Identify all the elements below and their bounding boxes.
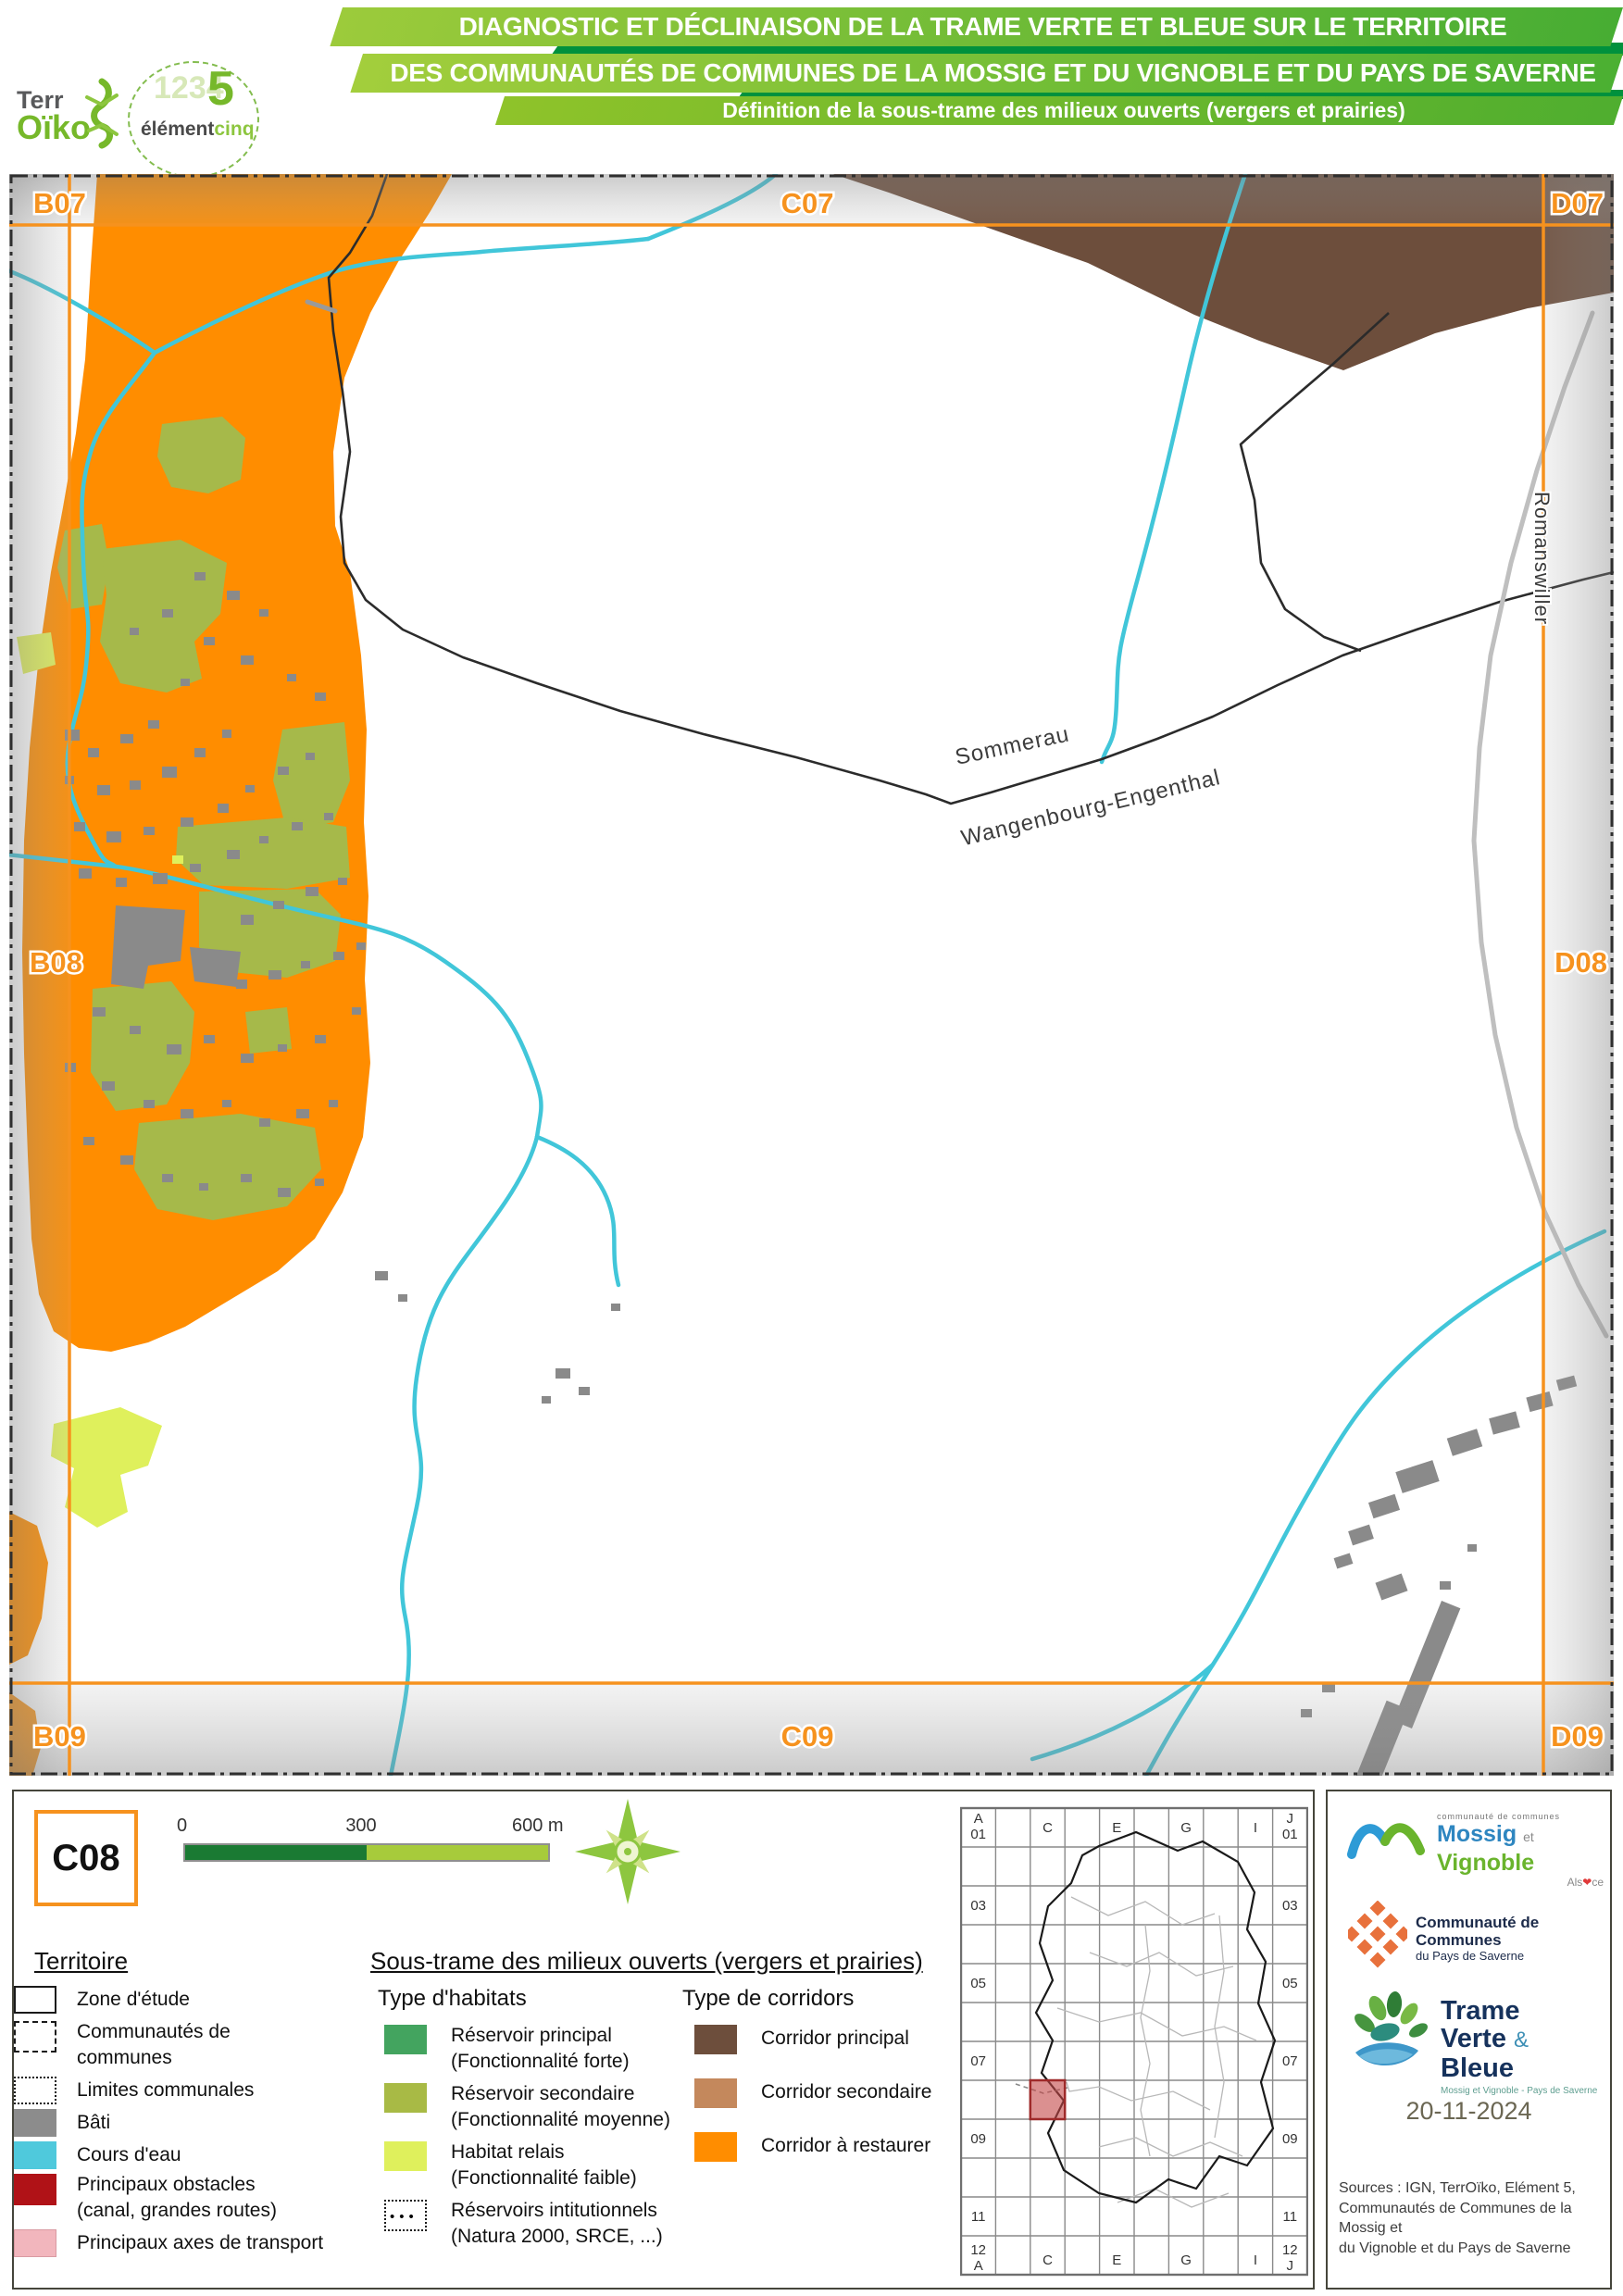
mossig-word: Mossig: [1437, 1821, 1517, 1847]
communautes-swatch: [14, 2021, 56, 2053]
legend-item-reservoir-secondaire: Réservoir secondaire(Fonctionnalité moye…: [384, 2081, 670, 2133]
tile-id: C08: [52, 1838, 119, 1879]
legend-label-line2: (canal, grandes routes): [77, 2200, 277, 2221]
minimap-label: 12: [1282, 2242, 1298, 2258]
legend-label-line2: (Fonctionnalité forte): [451, 2051, 630, 2072]
minimap-label: J: [1287, 2258, 1294, 2274]
alsace-post: ce: [1592, 1876, 1604, 1889]
limites-swatch: [14, 2077, 56, 2104]
minimap-label: G: [1180, 1820, 1192, 1836]
minimap-label: 07: [1282, 2053, 1298, 2069]
grid-label-d08: D08: [1554, 946, 1607, 979]
legend-item-bati: Bâti: [14, 2107, 110, 2137]
tvb-line1: Trame: [1441, 1997, 1607, 2025]
subtitle-text: Définition de la sous-trame des milieux …: [722, 98, 1405, 122]
zone-etude-swatch: [14, 1986, 56, 2014]
scale-bar-light-half: [367, 1845, 548, 1860]
legend-label-line2: (Natura 2000, SRCE, ...): [451, 2226, 663, 2247]
terroiko-logo: Terr Oïko: [17, 88, 91, 143]
legend-label: Réservoirs intitutionnels(Natura 2000, S…: [451, 2198, 663, 2250]
title-banner-1: DIAGNOSTIC ET DÉCLINAISON DE LA TRAME VE…: [343, 7, 1623, 46]
minimap-label: 09: [1282, 2131, 1298, 2147]
legend-item-habitat-relais: Habitat relais(Fonctionnalité faible): [384, 2140, 637, 2191]
saverne-logo: [1348, 1901, 1407, 1974]
saverne-line2: du Pays de Saverne: [1416, 1949, 1605, 1963]
reservoirs-institutionnels-swatch: [384, 2200, 427, 2231]
corridor-restaurer-swatch: [694, 2132, 737, 2162]
map-sheet-page: DIAGNOSTIC ET DÉCLINAISON DE LA TRAME VE…: [0, 0, 1623, 2296]
minimap-label: E: [1112, 2252, 1121, 2268]
legend-item-corridor-secondaire: Corridor secondaire: [694, 2077, 931, 2108]
scale-tick-0: 0: [177, 1816, 187, 1837]
scale-tick-600: 600 m: [512, 1816, 564, 1837]
mossig-wave-icon: [1346, 1808, 1429, 1862]
legend-item-limites: Limites communales: [14, 2075, 254, 2104]
elementcinq-name-2: cinq: [214, 119, 254, 140]
legend-label: Bâti: [77, 2107, 110, 2136]
elementcinq-five: 5: [207, 61, 234, 117]
territoire-heading: Territoire: [34, 1947, 128, 1976]
corridors-subheading: Type de corridors: [682, 1986, 854, 2012]
cours-eau-swatch: [14, 2141, 56, 2169]
grid-label-d07: D07: [1551, 187, 1604, 219]
habitat-relais-swatch: [384, 2141, 427, 2171]
mossig-et: et: [1523, 1829, 1534, 1844]
header: DIAGNOSTIC ET DÉCLINAISON DE LA TRAME VE…: [0, 0, 1623, 174]
legend-label: Principaux obstacles(canal, grandes rout…: [77, 2172, 277, 2224]
tvb-text: Trame Verte & Bleue Mossig et Vignoble -…: [1441, 1997, 1607, 2096]
minimap-label: E: [1112, 1820, 1121, 1836]
tile-id-box: C08: [34, 1810, 138, 1906]
legend-item-reservoir-principal: Réservoir principal(Fonctionnalité forte…: [384, 2023, 630, 2075]
minimap-label: G: [1180, 2252, 1192, 2268]
scale-tick-300: 300: [333, 1816, 389, 1837]
sources-text: Sources : IGN, TerrOïko, Elément 5, Comm…: [1339, 2178, 1603, 2258]
grid-label-b08: B08: [30, 946, 82, 979]
legend-item-communautes: Communautés decommunes: [14, 2019, 231, 2071]
main-map: B07 C07 D07 B08 D08 B09 C09 D09 Sommerau…: [9, 174, 1614, 1776]
saverne-text: Communauté de Communes du Pays de Savern…: [1416, 1914, 1605, 1963]
legend-item-reservoirs-institutionnels: Réservoirs intitutionnels(Natura 2000, S…: [384, 2198, 663, 2250]
legend-label: Zone d'étude: [77, 1984, 190, 2013]
legend-label: Cours d'eau: [77, 2140, 181, 2168]
vignoble-word: Vignoble: [1437, 1850, 1534, 1876]
corridor-secondaire-swatch: [694, 2078, 737, 2108]
legend-label: Réservoir secondaire(Fonctionnalité moye…: [451, 2081, 670, 2133]
legend-label-line2: (Fonctionnalité moyenne): [451, 2109, 670, 2130]
credits-panel: communauté de communes Mossig et Vignobl…: [1326, 1790, 1612, 2290]
legend-item-obstacles: Principaux obstacles(canal, grandes rout…: [14, 2172, 277, 2224]
tvb-verte: Verte: [1441, 2024, 1506, 2053]
minimap-label: 03: [970, 1898, 986, 1914]
label-romanswiller: Romanswiller: [1530, 492, 1554, 625]
title-banner-2: DES COMMUNAUTÉS DE COMMUNES DE LA MOSSIG…: [363, 54, 1623, 93]
legend-label: Principaux axes de transport: [77, 2227, 323, 2256]
minimap-current-tile-highlight: [1030, 2080, 1065, 2119]
minimap-label: 05: [1282, 1976, 1298, 1991]
grid-label-c07: C07: [781, 187, 834, 219]
legend-panel: C08 0 300 600 m Territoire Zone d'étude …: [12, 1790, 1315, 2290]
map-canvas: B07 C07 D07 B08 D08 B09 C09 D09 Sommerau…: [9, 174, 1614, 1776]
legend-label: Corridor secondaire: [761, 2077, 931, 2105]
minimap-commune-lines: [1057, 1897, 1256, 2207]
minimap-grid: [961, 1808, 1307, 2275]
saverne-line1: Communauté de Communes: [1416, 1914, 1605, 1949]
minimap-label: 09: [970, 2131, 986, 2147]
minimap-label: C: [1042, 2252, 1053, 2268]
legend-item-corridor-restaurer: Corridor à restaurer: [694, 2130, 930, 2162]
elementcinq-name-1: élément: [141, 119, 214, 140]
minimap-label: I: [1254, 1820, 1257, 1836]
minimap-label: A: [974, 2258, 983, 2274]
bati-swatch: [14, 2109, 56, 2137]
legend-label: Limites communales: [77, 2075, 254, 2103]
reservoir-secondaire-swatch: [384, 2083, 427, 2113]
title-line-1: DIAGNOSTIC ET DÉCLINAISON DE LA TRAME VE…: [459, 12, 1507, 41]
minimap-label: J: [1287, 1811, 1294, 1827]
tvb-subtitle: Mossig et Vignoble - Pays de Saverne: [1441, 2086, 1607, 2096]
corridor-principal-swatch: [694, 2025, 737, 2054]
minimap-label: 01: [970, 1827, 986, 1842]
tvb-amp: &: [1514, 2028, 1529, 2053]
legend-label-line1: Principaux obstacles: [77, 2174, 256, 2195]
gecko-icon: [74, 77, 130, 151]
elementcinq-name: élémentcinq: [141, 119, 255, 141]
title-line-2: DES COMMUNAUTÉS DE COMMUNES DE LA MOSSIG…: [390, 58, 1595, 87]
habitats-subheading: Type d'habitats: [378, 1986, 527, 2012]
legend-label: Corridor à restaurer: [761, 2130, 930, 2159]
legend-item-zone-etude: Zone d'étude: [14, 1984, 190, 2014]
mossig-small-caption: communauté de communes: [1437, 1812, 1604, 1821]
minimap-label: 11: [971, 2209, 986, 2225]
grid-label-d09: D09: [1551, 1720, 1604, 1753]
legend-label-line2: (Fonctionnalité faible): [451, 2167, 637, 2189]
sources-line3: du Vignoble et du Pays de Saverne: [1339, 2239, 1603, 2259]
mossig-vignoble-logo: [1346, 1808, 1429, 1866]
legend-label-line1: Communautés de: [77, 2021, 231, 2042]
legend-label: Réservoir principal(Fonctionnalité forte…: [451, 2023, 630, 2075]
minimap-label: 11: [1283, 2209, 1298, 2225]
sources-line2: Communautés de Communes de la Mossig et: [1339, 2199, 1603, 2239]
mossig-vignoble-text: communauté de communes Mossig et Vignobl…: [1437, 1812, 1604, 1889]
alsace-pre: Als: [1567, 1876, 1583, 1889]
legend-label-line2: communes: [77, 2047, 172, 2068]
legend-label: Communautés decommunes: [77, 2019, 231, 2071]
compass-rose-icon: [573, 1797, 682, 1906]
scale-bar-dark-half: [185, 1845, 367, 1860]
reservoir-principal-swatch: [384, 2025, 427, 2054]
legend-item-cours-eau: Cours d'eau: [14, 2140, 181, 2169]
axes-transport-swatch: [14, 2229, 56, 2257]
sources-line1: Sources : IGN, TerrOïko, Elément 5,: [1339, 2178, 1603, 2199]
minimap-label: 12: [970, 2242, 986, 2258]
minimap-label: 05: [970, 1976, 986, 1991]
legend-label: Corridor principal: [761, 2023, 909, 2052]
legend-label-line1: Habitat relais: [451, 2141, 565, 2163]
tvb-logo: [1348, 1988, 1433, 2081]
saverne-diamonds-icon: [1348, 1901, 1407, 1969]
overview-minimap: A 01 C E G I J 01 03 03 05 05 07 07 09 0…: [960, 1804, 1308, 2278]
subtitle-banner: Définition de la sous-trame des milieux …: [505, 96, 1623, 125]
heart-icon: ❤: [1582, 1876, 1592, 1889]
minimap-label: 01: [1282, 1827, 1298, 1842]
legend-label: Habitat relais(Fonctionnalité faible): [451, 2140, 637, 2191]
soustrame-heading: Sous-trame des milieux ouverts (vergers …: [370, 1947, 923, 1976]
tvb-bleue: Bleue: [1441, 2053, 1514, 2083]
grid-label-b09: B09: [33, 1720, 86, 1753]
minimap-label: 03: [1282, 1898, 1298, 1914]
map-date: 20-11-2024: [1328, 2097, 1610, 2126]
tvb-line2: Verte & Bleue: [1441, 2025, 1607, 2082]
minimap-label: I: [1254, 2252, 1257, 2268]
mossig-name: Mossig et Vignoble: [1437, 1821, 1604, 1876]
legend-label-line1: Réservoir secondaire: [451, 2083, 634, 2104]
minimap-label: A: [974, 1811, 983, 1827]
grid-label-c09: C09: [781, 1720, 834, 1753]
minimap-label: C: [1042, 1820, 1053, 1836]
legend-label-line1: Réservoirs intitutionnels: [451, 2200, 657, 2221]
tvb-leaves-icon: [1348, 1988, 1433, 2077]
minimap-label: 07: [970, 2053, 986, 2069]
legend-label-line1: Réservoir principal: [451, 2025, 612, 2046]
elementcinq-logo: 1234 5 élémentcinq: [128, 61, 259, 174]
legend-item-axes-transport: Principaux axes de transport: [14, 2227, 323, 2257]
obstacles-swatch: [14, 2174, 56, 2205]
scale-bar: [183, 1843, 550, 1862]
legend-item-corridor-principal: Corridor principal: [694, 2023, 909, 2054]
mossig-alsace: Als❤ce: [1437, 1876, 1604, 1889]
grid-label-b07: B07: [33, 187, 86, 219]
